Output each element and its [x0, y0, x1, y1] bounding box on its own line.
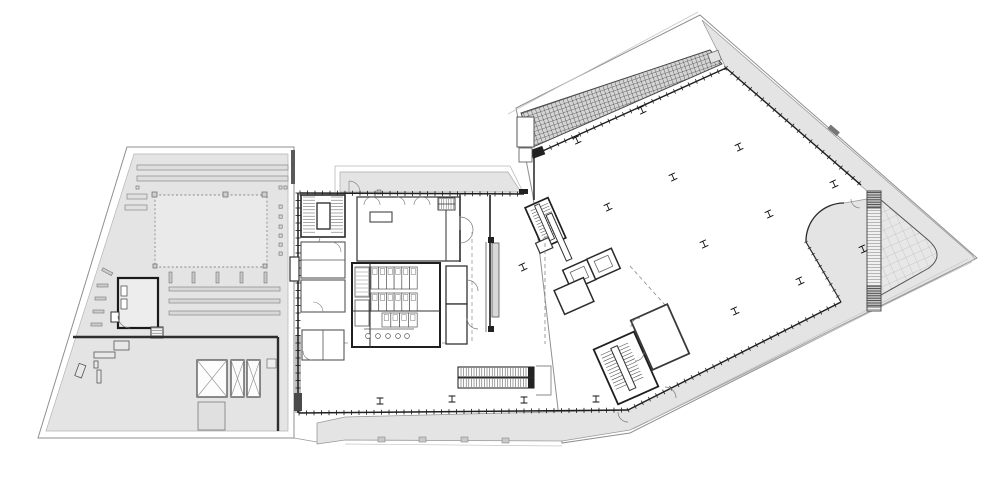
elevator: [317, 203, 330, 229]
louver-dense-bottom: [867, 286, 881, 307]
bumper: [91, 323, 102, 326]
north-terrace: [340, 172, 521, 192]
parking-stub: [240, 272, 243, 283]
deck-tick: [378, 437, 385, 442]
marker-square: [279, 186, 282, 189]
service-room: [446, 304, 467, 344]
wall-block: [294, 393, 302, 411]
court-post: [223, 192, 228, 197]
wash-basin: [376, 334, 381, 339]
bumper: [93, 310, 104, 313]
service-pad: [198, 402, 225, 430]
corner-room: [517, 117, 534, 147]
office-room: [301, 280, 345, 312]
wash-basin: [396, 334, 401, 339]
edge-bar: [291, 150, 295, 184]
vestibule: [370, 212, 392, 222]
court-post: [152, 192, 157, 197]
door-arc: [467, 280, 478, 291]
marker-square: [279, 234, 282, 237]
corner-room: [519, 148, 532, 162]
bumper: [97, 284, 108, 287]
bumper: [95, 297, 106, 300]
wash-basin: [386, 334, 391, 339]
duct-shaft: [492, 243, 499, 317]
door-arc: [467, 318, 478, 329]
wall-stub: [125, 205, 147, 210]
marker-square: [279, 205, 282, 208]
plan-root: [38, 12, 977, 446]
wall-block: [488, 326, 494, 332]
marker-square: [279, 243, 282, 246]
long-bar: [169, 311, 280, 315]
wash-basin: [366, 334, 371, 339]
toilet-stalls: [371, 293, 417, 311]
skylight-bar: [137, 165, 288, 170]
floor-plan: [0, 0, 1000, 490]
column-symbol: [521, 397, 528, 403]
yard-clutter: [94, 352, 115, 358]
escalator-end: [528, 367, 534, 377]
dashed-court: [155, 195, 267, 267]
louver-dense-top: [867, 191, 881, 208]
marker-square: [279, 225, 282, 228]
court-post: [262, 192, 267, 197]
deck-tick: [419, 437, 426, 442]
long-bar: [169, 287, 280, 291]
service-box: [267, 359, 276, 368]
long-bar: [169, 299, 280, 303]
marker-square: [284, 186, 287, 189]
plant-fixture: [121, 286, 127, 296]
column-symbol: [519, 263, 528, 271]
deck-tick: [461, 437, 468, 442]
deck-outer-line: [345, 444, 562, 446]
court-post: [153, 264, 157, 268]
wall-block: [488, 237, 494, 243]
plant-fixture: [121, 299, 127, 309]
floor-plan-page: [0, 0, 1000, 490]
escalator-end: [528, 378, 534, 388]
double-door-arc: [460, 217, 473, 230]
escalator-band: [458, 378, 534, 388]
wall-block: [519, 189, 528, 194]
column-symbol: [377, 398, 384, 404]
marker-square: [279, 215, 282, 218]
toilet-stalls: [371, 267, 417, 289]
yard-clutter: [94, 361, 98, 368]
janitor-cell: [355, 267, 369, 297]
yard-clutter: [114, 341, 129, 350]
wash-basin: [405, 334, 410, 339]
marker-square: [136, 186, 139, 189]
site-line: [294, 438, 317, 442]
wall-stub: [127, 194, 147, 199]
double-door-arc: [460, 230, 473, 243]
escalator-band: [458, 367, 534, 377]
yard-clutter: [97, 370, 101, 383]
toilet-stalls: [382, 313, 417, 327]
column-symbol: [449, 396, 456, 402]
service-room: [446, 266, 467, 304]
skylight-bar: [137, 176, 288, 181]
parking-stub: [169, 272, 172, 283]
deck-tick: [502, 438, 509, 443]
escalator-bracket: [536, 366, 551, 395]
janitor-cell: [355, 300, 369, 326]
parking-stub: [192, 272, 195, 283]
parking-stub: [216, 272, 219, 283]
court-post: [263, 264, 267, 268]
marker-square: [279, 252, 282, 255]
wall-bay: [290, 257, 299, 281]
parking-stub: [264, 272, 267, 283]
